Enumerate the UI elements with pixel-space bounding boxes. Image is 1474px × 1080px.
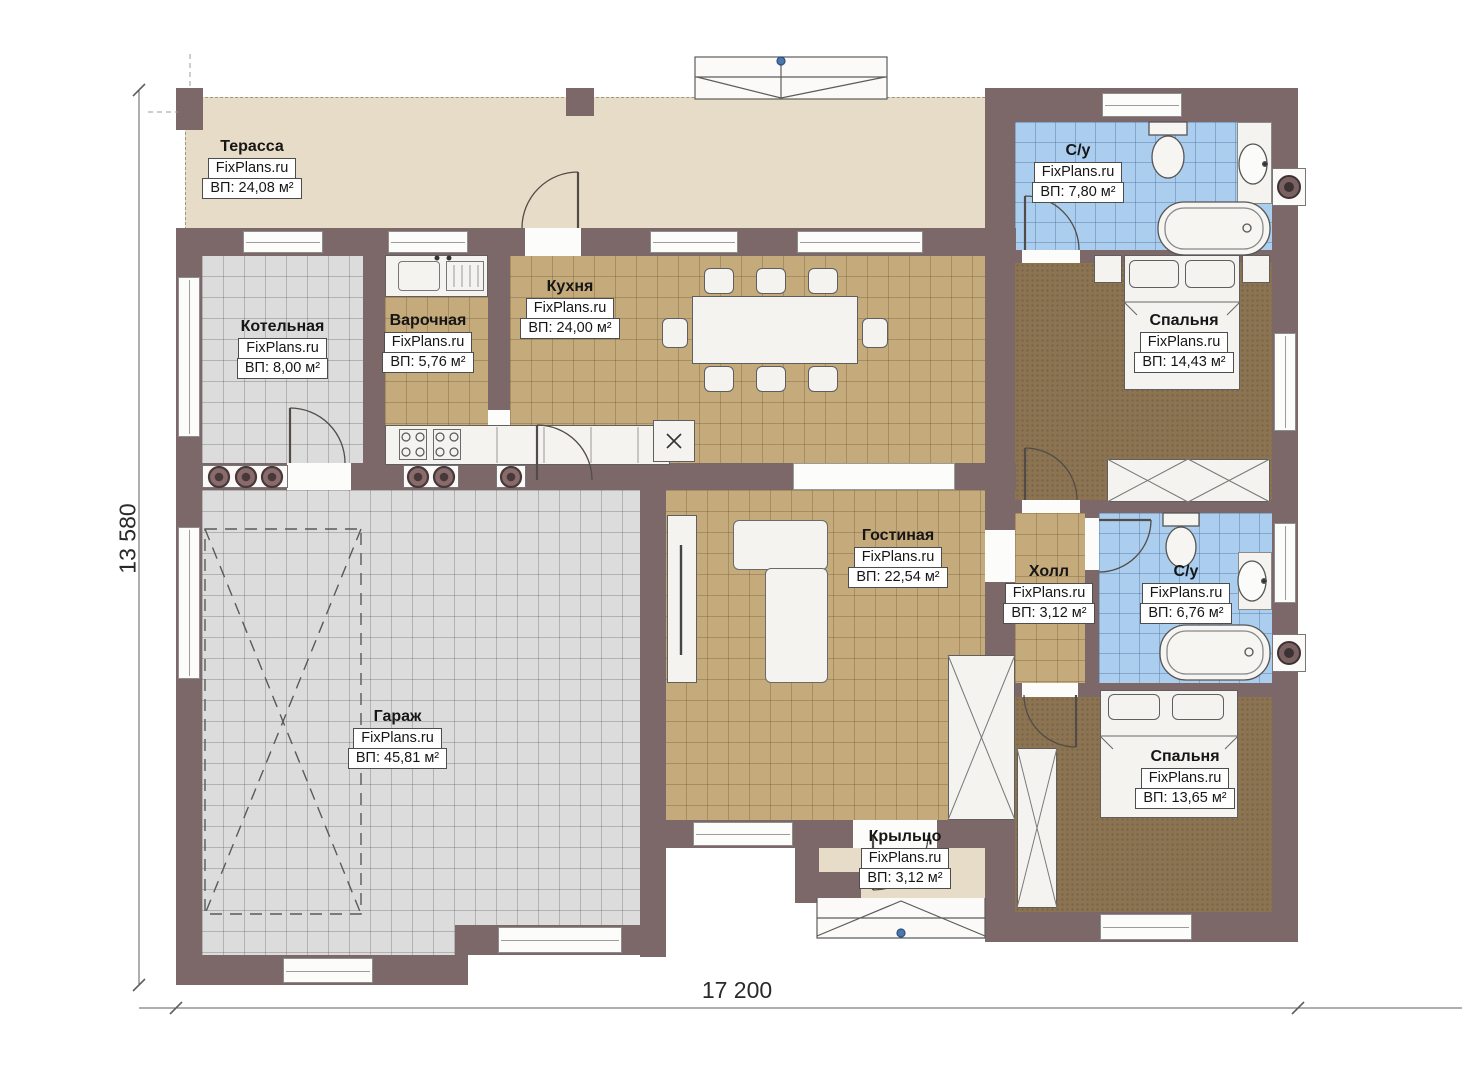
vanity-counter bbox=[1238, 552, 1272, 610]
room-label-kitchen: Кухня FixPlans.ru ВП: 24,00 м² bbox=[500, 278, 640, 339]
pillow bbox=[1108, 694, 1160, 720]
room-label-living: Гостиная FixPlans.ru ВП: 22,54 м² bbox=[843, 527, 953, 588]
watermark: FixPlans.ru bbox=[208, 158, 297, 179]
room-area: ВП: 14,43 м² bbox=[1134, 352, 1233, 373]
wall-niche-stove-vent bbox=[403, 465, 459, 488]
window bbox=[693, 822, 793, 846]
chair bbox=[862, 318, 888, 348]
nightstand bbox=[1242, 255, 1270, 283]
room-name: Кухня bbox=[547, 278, 594, 296]
chair bbox=[756, 268, 786, 294]
room-name: Холл bbox=[1029, 563, 1069, 581]
nightstand bbox=[1094, 255, 1122, 283]
window bbox=[650, 231, 738, 253]
watermark: FixPlans.ru bbox=[1034, 162, 1123, 183]
chair bbox=[704, 268, 734, 294]
wall-pillar-top-mid bbox=[566, 88, 594, 116]
stove-burner-box bbox=[399, 429, 427, 460]
room-name: Спальня bbox=[1150, 748, 1219, 766]
room-label-hall: Холл FixPlans.ru ВП: 3,12 м² bbox=[1008, 563, 1090, 624]
dishwasher-box bbox=[653, 420, 695, 462]
room-name: Гостиная bbox=[862, 527, 934, 545]
dimension-width: 17 200 bbox=[687, 977, 787, 1004]
water-heater-box-2 bbox=[1272, 634, 1306, 672]
water-heater-box-1 bbox=[1272, 168, 1306, 206]
vanity-counter bbox=[1237, 122, 1272, 204]
door-opening-garage-boiler bbox=[287, 463, 351, 490]
wall-garage-right bbox=[640, 487, 666, 957]
watermark: FixPlans.ru bbox=[1142, 583, 1231, 604]
room-area: ВП: 3,12 м² bbox=[1003, 603, 1094, 624]
window bbox=[388, 231, 468, 253]
wall-pillar-top-left bbox=[176, 88, 203, 130]
wall-porch-left bbox=[795, 845, 819, 903]
room-label-bath1: С/у FixPlans.ru ВП: 7,80 м² bbox=[1028, 142, 1128, 203]
room-label-bath2: С/у FixPlans.ru ВП: 6,76 м² bbox=[1136, 563, 1236, 624]
window bbox=[1100, 914, 1192, 940]
room-label-porch: Крыльцо FixPlans.ru ВП: 3,12 м² bbox=[855, 828, 955, 889]
room-name: Котельная bbox=[241, 318, 325, 336]
wall-niche-boiler-equipment bbox=[202, 465, 288, 488]
watermark: FixPlans.ru bbox=[1141, 768, 1230, 789]
pillow bbox=[1185, 260, 1235, 288]
entrance-steps bbox=[695, 57, 887, 99]
door-opening-terrace-kitchen bbox=[525, 228, 581, 256]
room-name: С/у bbox=[1066, 142, 1091, 160]
room-name: Крыльцо bbox=[869, 828, 942, 846]
tv-console bbox=[667, 515, 697, 683]
window bbox=[1274, 333, 1296, 431]
room-label-bedroom1: Спальня FixPlans.ru ВП: 14,43 м² bbox=[1128, 312, 1240, 373]
room-area: ВП: 3,12 м² bbox=[859, 868, 950, 889]
pillow bbox=[1129, 260, 1179, 288]
watermark: FixPlans.ru bbox=[526, 298, 615, 319]
wall-niche-vent bbox=[496, 465, 526, 488]
room-area: ВП: 22,54 м² bbox=[848, 567, 947, 588]
room-area: ВП: 8,00 м² bbox=[237, 358, 328, 379]
wardrobe bbox=[948, 655, 1015, 820]
room-area: ВП: 6,76 м² bbox=[1140, 603, 1231, 624]
room-area: ВП: 13,65 м² bbox=[1135, 788, 1234, 809]
chair bbox=[808, 366, 838, 392]
room-label-garage: Гараж FixPlans.ru ВП: 45,81 м² bbox=[340, 708, 455, 769]
window bbox=[797, 231, 923, 253]
chair bbox=[756, 366, 786, 392]
wardrobe bbox=[1107, 459, 1270, 502]
window bbox=[178, 277, 200, 437]
chair bbox=[662, 318, 688, 348]
watermark: FixPlans.ru bbox=[1140, 332, 1229, 353]
door-opening-hall-bedroom1 bbox=[1022, 500, 1080, 513]
kitchen-drainboard bbox=[446, 261, 484, 291]
room-area: ВП: 45,81 м² bbox=[348, 748, 447, 769]
sofa-section bbox=[765, 568, 828, 683]
floor-plan: Терасса FixPlans.ru ВП: 24,08 м² Котельн… bbox=[0, 0, 1474, 1080]
pillow bbox=[1172, 694, 1224, 720]
room-label-cooking: Варочная FixPlans.ru ВП: 5,76 м² bbox=[358, 312, 498, 373]
room-name: Спальня bbox=[1149, 312, 1218, 330]
room-label-bedroom2: Спальня FixPlans.ru ВП: 13,65 м² bbox=[1130, 748, 1240, 809]
door-opening-hall-bedroom2 bbox=[1022, 683, 1078, 697]
chair bbox=[808, 268, 838, 294]
watermark: FixPlans.ru bbox=[854, 547, 943, 568]
chair bbox=[704, 366, 734, 392]
room-label-terrace: Терасса FixPlans.ru ВП: 24,08 м² bbox=[182, 138, 322, 199]
window bbox=[283, 958, 373, 983]
watermark: FixPlans.ru bbox=[353, 728, 442, 749]
watermark: FixPlans.ru bbox=[861, 848, 950, 869]
watermark: FixPlans.ru bbox=[384, 332, 473, 353]
room-name: Гараж bbox=[374, 708, 422, 726]
dining-table bbox=[692, 296, 858, 364]
window bbox=[243, 231, 323, 253]
window bbox=[498, 927, 622, 953]
watermark: FixPlans.ru bbox=[1005, 583, 1094, 604]
dimension-height: 13 580 bbox=[115, 484, 142, 594]
sofa-section bbox=[733, 520, 828, 570]
porch-steps bbox=[817, 898, 985, 938]
door-opening-bedroom1-bath1 bbox=[1022, 250, 1080, 263]
watermark: FixPlans.ru bbox=[238, 338, 327, 359]
kitchen-sink-bowl bbox=[398, 261, 440, 291]
room-area: ВП: 5,76 м² bbox=[382, 352, 473, 373]
room-label-boiler: Котельная FixPlans.ru ВП: 8,00 м² bbox=[210, 318, 355, 379]
room-area: ВП: 24,00 м² bbox=[520, 318, 619, 339]
wall-wing-right bbox=[1272, 88, 1298, 940]
room-name: Терасса bbox=[220, 138, 283, 156]
opening-kitchen-living bbox=[793, 463, 955, 490]
room-name: С/у bbox=[1174, 563, 1199, 581]
window bbox=[1274, 523, 1296, 603]
window bbox=[178, 527, 200, 679]
wardrobe bbox=[1017, 748, 1057, 908]
room-area: ВП: 24,08 м² bbox=[202, 178, 301, 199]
kitchen-lower-counter bbox=[385, 425, 670, 465]
room-name: Варочная bbox=[390, 312, 467, 330]
room-area: ВП: 7,80 м² bbox=[1032, 182, 1123, 203]
stove-burner-box bbox=[433, 429, 461, 460]
window bbox=[1102, 93, 1182, 117]
